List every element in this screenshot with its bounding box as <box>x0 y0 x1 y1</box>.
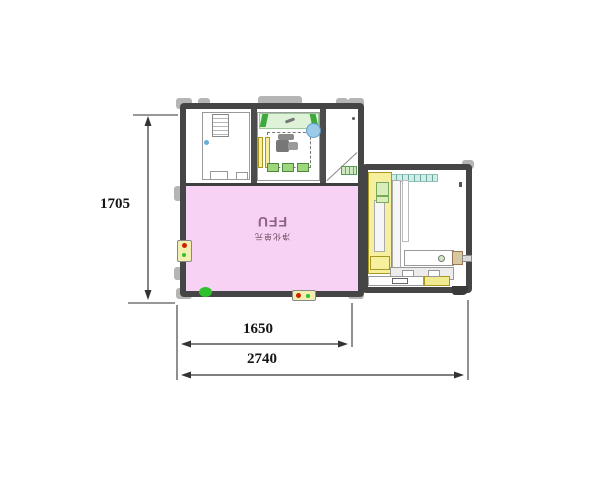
arrowhead-up-icon <box>145 116 152 126</box>
arrowhead-right-icon <box>454 372 464 379</box>
arrowhead-left-icon <box>181 341 191 348</box>
arrowhead-down-icon <box>145 290 152 300</box>
dimension-lines <box>0 0 600 500</box>
dimension-label-height: 1705 <box>96 196 134 212</box>
arrowhead-right-icon <box>338 341 348 348</box>
layout-drawing-canvas: 净化单元 FFU <box>0 0 600 500</box>
dimension-label-overall-width: 2740 <box>240 351 284 367</box>
dimension-label-inner-width: 1650 <box>238 321 278 337</box>
arrowhead-left-icon <box>181 372 191 379</box>
